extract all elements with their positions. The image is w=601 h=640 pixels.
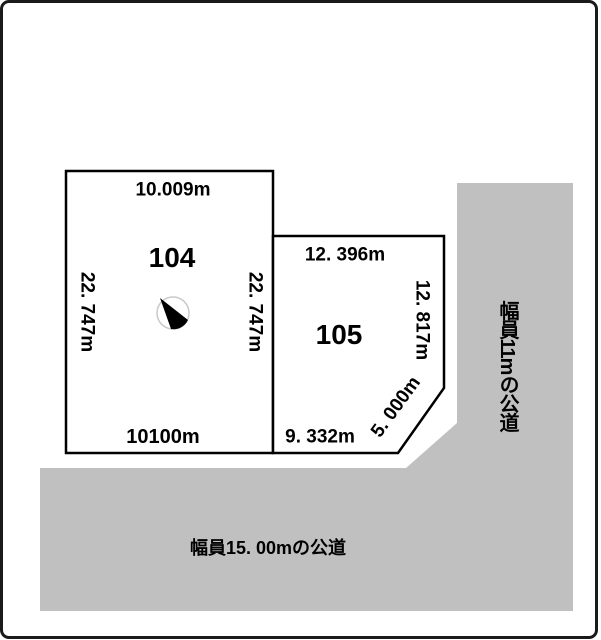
lot-104-top-dimension: 10.009m: [135, 181, 210, 200]
road-label-right: 幅員11mの公道: [497, 301, 517, 432]
lot-105-right-dimension: 12. 817m: [413, 280, 432, 360]
lot-105-top-dimension: 12. 396m: [305, 246, 385, 265]
lot-104-bottom-dimension: 10100m: [126, 427, 199, 447]
road-label-bottom: 幅員15. 00mの公道: [190, 534, 346, 560]
north-arrow-icon: [155, 295, 191, 331]
plot-diagram: 10.009m 104 22. 747m 22. 747m 10100m 12.…: [0, 0, 601, 640]
lot-105-number: 105: [316, 321, 363, 349]
lot-104-number: 104: [149, 244, 196, 272]
lot-104-left-dimension: 22. 747m: [78, 272, 97, 352]
lot-104-right-dimension: 22. 747m: [246, 272, 265, 352]
lot-105-bottom-dimension: 9. 332m: [285, 428, 355, 447]
